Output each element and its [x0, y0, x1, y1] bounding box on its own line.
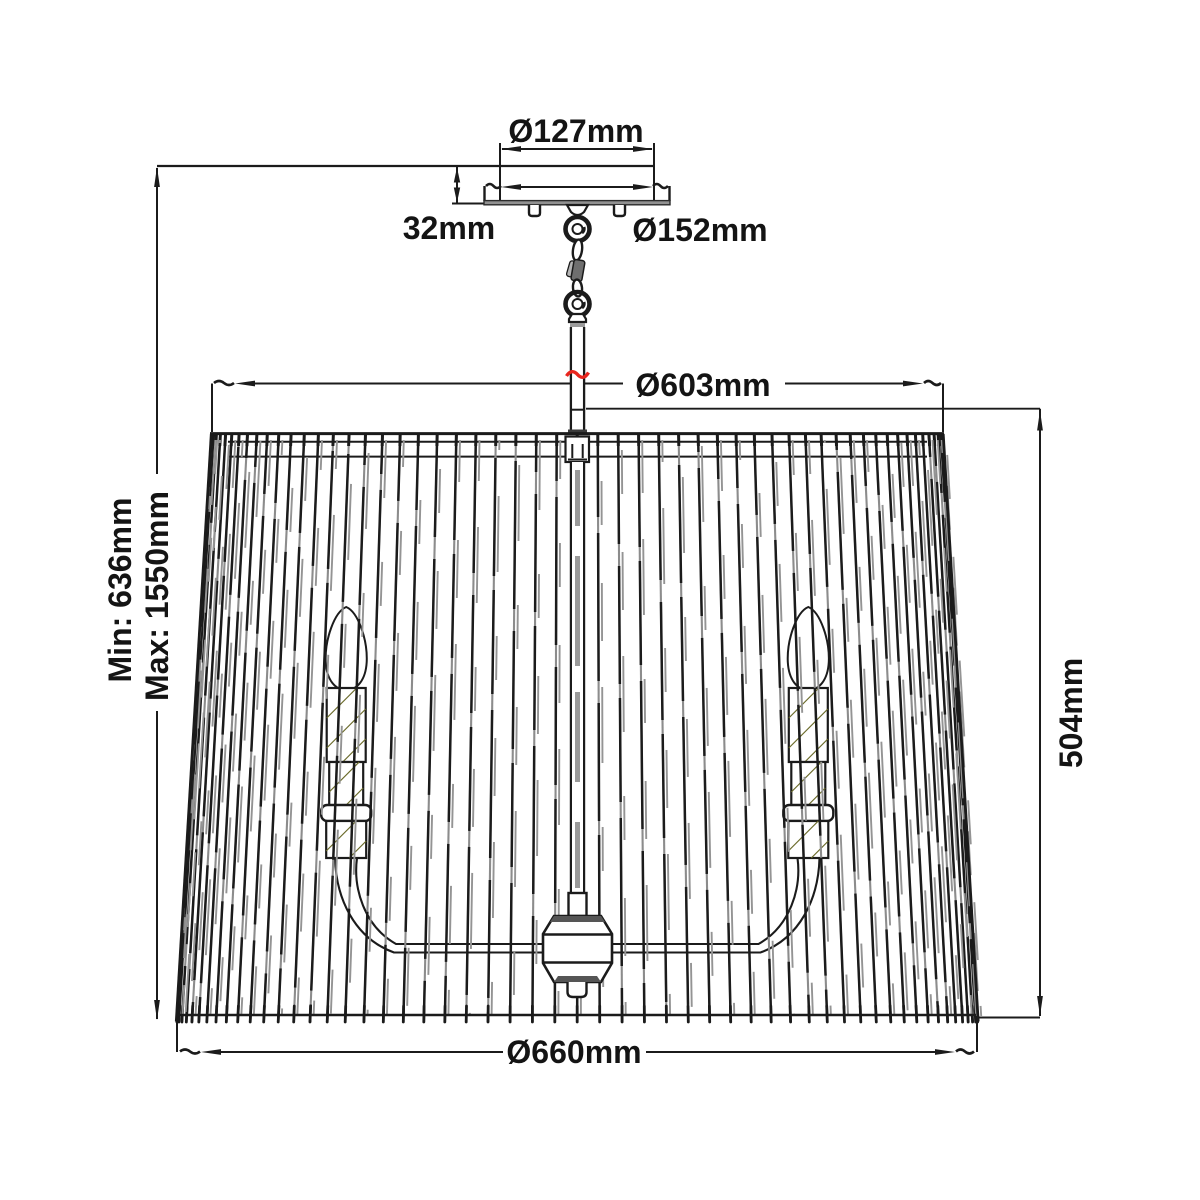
svg-text:Ø127mm: Ø127mm [508, 113, 643, 149]
svg-text:32mm: 32mm [403, 210, 496, 246]
svg-text:Ø152mm: Ø152mm [632, 212, 767, 248]
svg-text:Max: 1550mm: Max: 1550mm [139, 491, 175, 701]
svg-text:504mm: 504mm [1053, 658, 1089, 768]
svg-text:Min: 636mm: Min: 636mm [102, 498, 138, 683]
svg-text:Ø660mm: Ø660mm [506, 1034, 641, 1070]
svg-text:Ø603mm: Ø603mm [635, 367, 770, 403]
